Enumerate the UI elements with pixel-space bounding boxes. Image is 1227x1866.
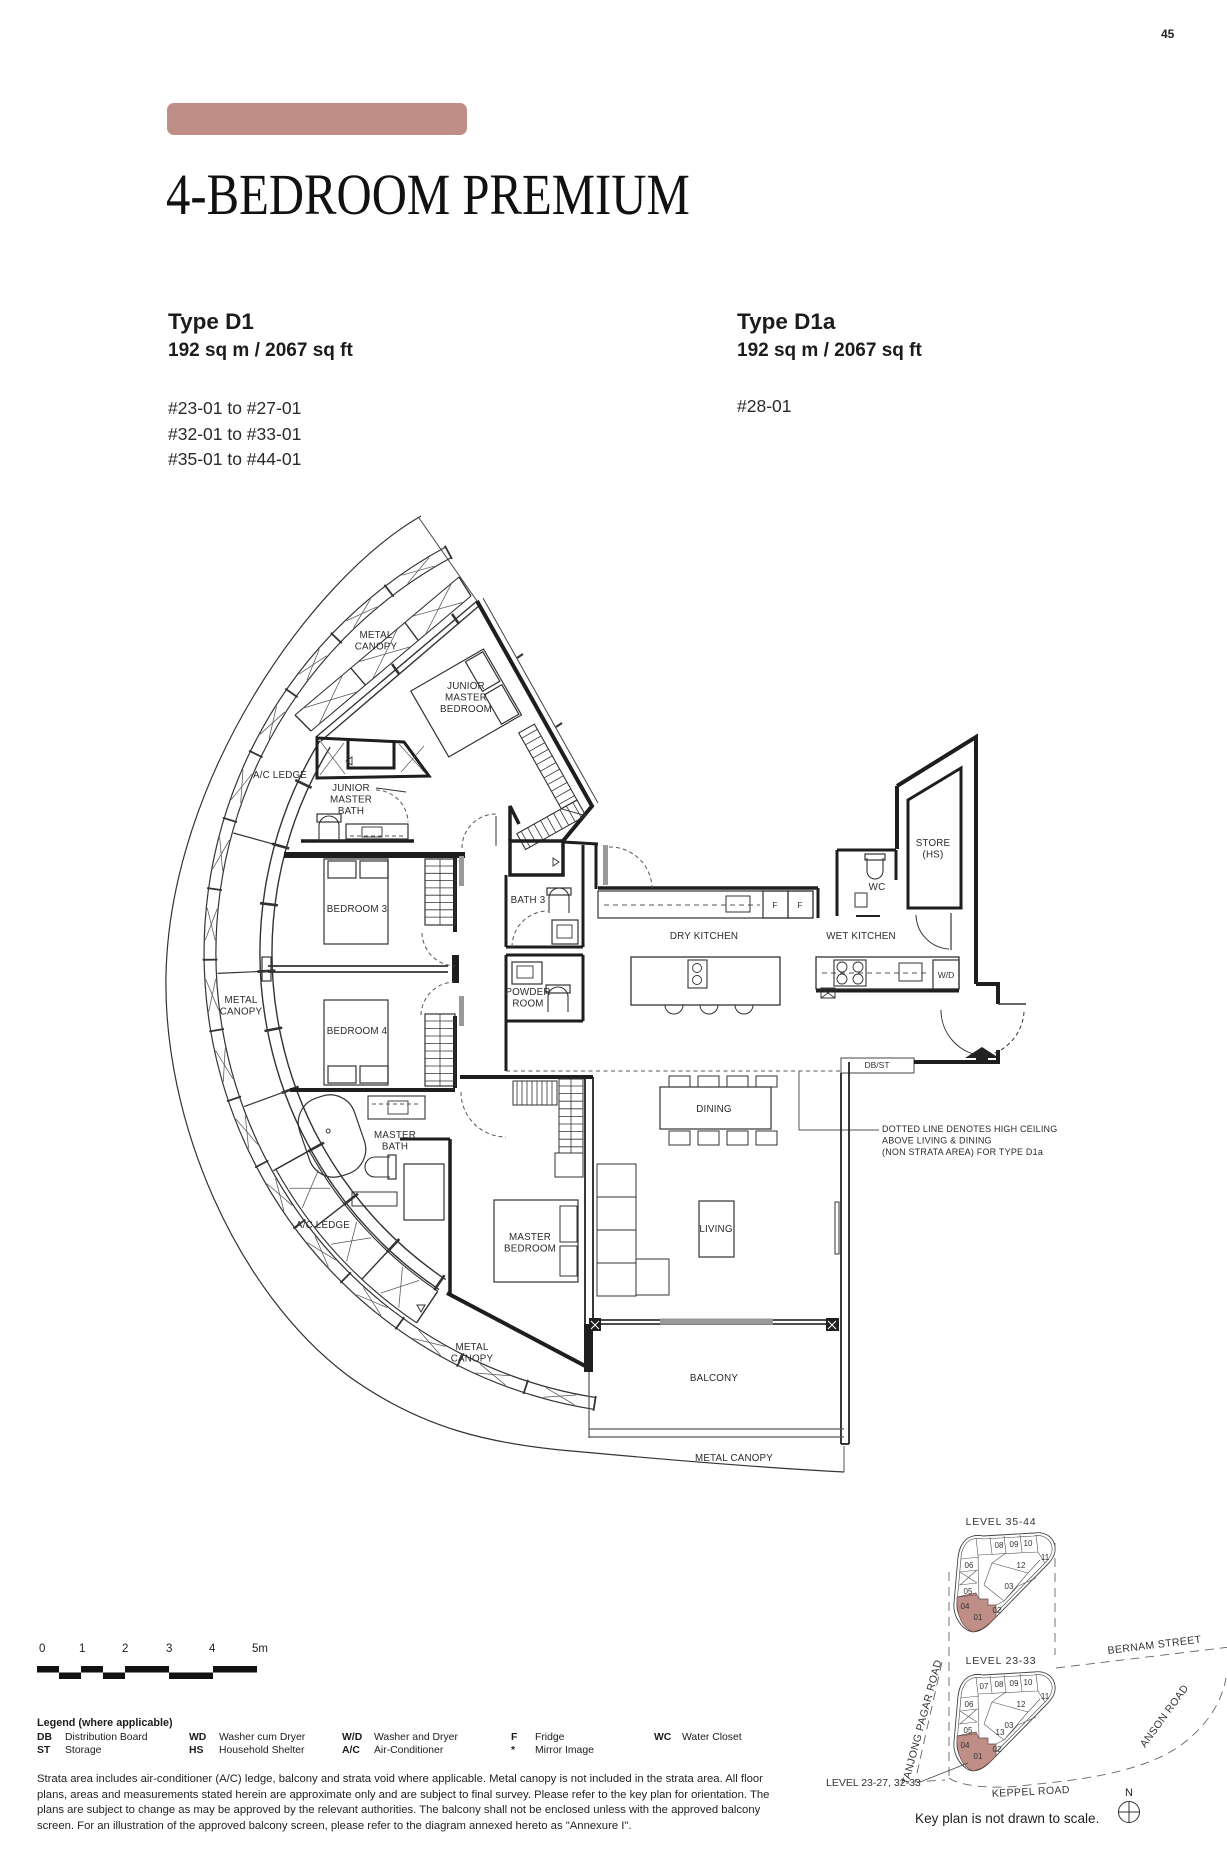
svg-text:04: 04 xyxy=(961,1602,970,1611)
svg-text:BERNAM STREET: BERNAM STREET xyxy=(1107,1634,1202,1657)
svg-text:10: 10 xyxy=(1024,1539,1033,1548)
svg-text:F: F xyxy=(797,900,802,910)
svg-text:METALCANOPY: METALCANOPY xyxy=(451,1342,494,1365)
svg-text:METALCANOPY: METALCANOPY xyxy=(220,995,263,1018)
svg-text:W/D: W/D xyxy=(938,970,955,980)
svg-text:05: 05 xyxy=(964,1587,973,1596)
svg-text:01: 01 xyxy=(974,1613,983,1622)
svg-text:MASTERBATH: MASTERBATH xyxy=(374,1130,416,1153)
svg-text:13: 13 xyxy=(996,1728,1005,1737)
svg-text:08: 08 xyxy=(995,1680,1004,1689)
svg-text:03: 03 xyxy=(1005,1721,1014,1730)
svg-text:TANJONG PAGAR ROAD: TANJONG PAGAR ROAD xyxy=(900,1658,945,1785)
svg-text:WET KITCHEN: WET KITCHEN xyxy=(826,931,896,942)
svg-text:A/C LEDGE: A/C LEDGE xyxy=(253,770,307,781)
svg-text:LEVEL 23-27, 32-33: LEVEL 23-27, 32-33 xyxy=(826,1777,921,1789)
svg-text:JUNIORMASTERBEDROOM: JUNIORMASTERBEDROOM xyxy=(440,681,492,715)
svg-text:12: 12 xyxy=(1017,1561,1026,1570)
svg-text:10: 10 xyxy=(1024,1678,1033,1687)
svg-text:DOTTED LINE DENOTES HIGH CEILI: DOTTED LINE DENOTES HIGH CEILINGABOVE LI… xyxy=(882,1124,1057,1157)
svg-text:11: 11 xyxy=(1041,1553,1050,1562)
svg-text:06: 06 xyxy=(965,1700,974,1709)
svg-text:02: 02 xyxy=(993,1745,1002,1754)
svg-text:LEVEL 23-33: LEVEL 23-33 xyxy=(966,1655,1037,1667)
svg-text:04: 04 xyxy=(961,1741,970,1750)
svg-text:JUNIORMASTERBATH: JUNIORMASTERBATH xyxy=(330,783,372,817)
svg-text:09: 09 xyxy=(1010,1679,1019,1688)
svg-text:DB/ST: DB/ST xyxy=(864,1060,889,1070)
svg-text:DINING: DINING xyxy=(696,1104,732,1115)
svg-text:STORE(HS): STORE(HS) xyxy=(916,838,951,861)
svg-text:DRY KITCHEN: DRY KITCHEN xyxy=(670,931,738,942)
svg-text:KEPPEL ROAD: KEPPEL ROAD xyxy=(992,1784,1071,1800)
svg-text:A/C LEDGE: A/C LEDGE xyxy=(296,1220,350,1231)
svg-text:05: 05 xyxy=(964,1726,973,1735)
svg-text:Key plan is not drawn to scale: Key plan is not drawn to scale. xyxy=(915,1811,1099,1826)
svg-text:METAL CANOPY: METAL CANOPY xyxy=(695,1453,773,1464)
svg-text:POWDERROOM: POWDERROOM xyxy=(505,987,550,1010)
svg-text:09: 09 xyxy=(1010,1540,1019,1549)
svg-text:LIVING: LIVING xyxy=(699,1224,732,1235)
svg-text:07: 07 xyxy=(980,1682,989,1691)
svg-text:02: 02 xyxy=(993,1606,1002,1615)
svg-text:11: 11 xyxy=(1041,1692,1050,1701)
svg-text:01: 01 xyxy=(974,1752,983,1761)
svg-text:BEDROOM 4: BEDROOM 4 xyxy=(327,1026,388,1037)
svg-text:ANSON ROAD: ANSON ROAD xyxy=(1138,1683,1192,1750)
svg-text:BALCONY: BALCONY xyxy=(690,1373,738,1384)
svg-text:WC: WC xyxy=(869,882,886,893)
svg-text:METALCANOPY: METALCANOPY xyxy=(355,630,398,653)
svg-text:03: 03 xyxy=(1005,1582,1014,1591)
svg-text:12: 12 xyxy=(1017,1700,1026,1709)
svg-text:N: N xyxy=(1125,1787,1133,1799)
svg-text:BEDROOM 3: BEDROOM 3 xyxy=(327,904,388,915)
svg-text:BATH 3: BATH 3 xyxy=(511,895,546,906)
svg-text:06: 06 xyxy=(965,1561,974,1570)
svg-text:F: F xyxy=(772,900,777,910)
svg-text:MASTERBEDROOM: MASTERBEDROOM xyxy=(504,1232,556,1255)
svg-text:LEVEL 35-44: LEVEL 35-44 xyxy=(966,1516,1037,1528)
svg-text:08: 08 xyxy=(995,1541,1004,1550)
